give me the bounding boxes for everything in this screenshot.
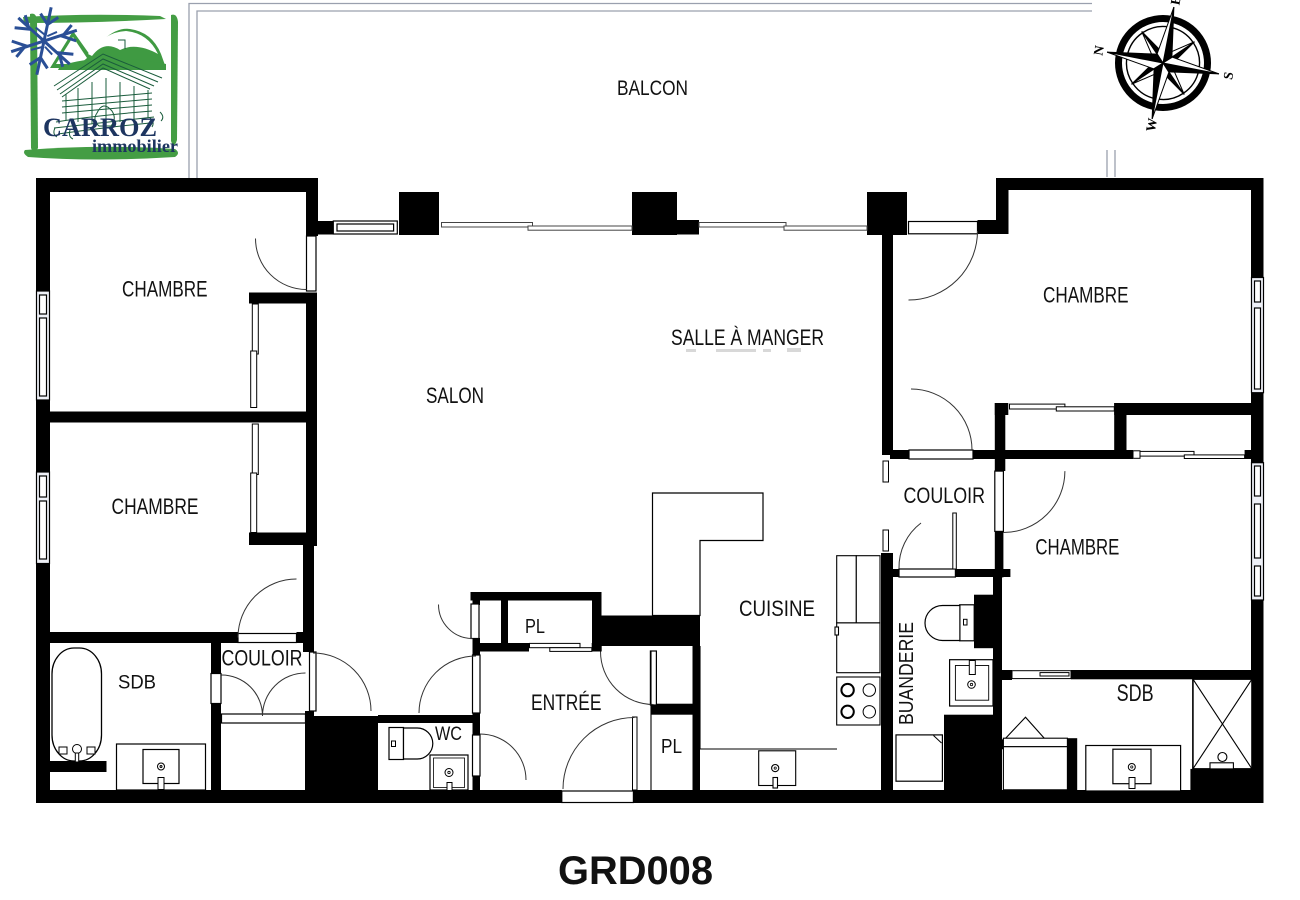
svg-text:COULOIR: COULOIR <box>904 483 986 508</box>
svg-text:immobilier: immobilier <box>92 136 178 156</box>
svg-text:SALLE À MANGER: SALLE À MANGER <box>671 325 824 350</box>
svg-text:GRD008: GRD008 <box>558 849 713 893</box>
svg-text:COULOIR: COULOIR <box>222 646 303 671</box>
svg-text:CUISINE: CUISINE <box>739 596 815 621</box>
svg-text:SDB: SDB <box>1117 680 1154 707</box>
svg-text:CHAMBRE: CHAMBRE <box>1035 535 1119 560</box>
svg-text:CHAMBRE: CHAMBRE <box>1043 283 1129 308</box>
svg-text:CHAMBRE: CHAMBRE <box>112 494 199 519</box>
svg-text:BALCON: BALCON <box>617 77 688 100</box>
svg-text:SDB: SDB <box>118 673 156 694</box>
svg-text:PL: PL <box>525 616 545 638</box>
svg-text:ENTRÉE: ENTRÉE <box>531 690 602 715</box>
svg-text:PL: PL <box>661 736 682 758</box>
svg-text:SALON: SALON <box>426 383 484 408</box>
svg-text:WC: WC <box>435 724 462 745</box>
svg-text:CHAMBRE: CHAMBRE <box>122 277 208 302</box>
svg-text:BUANDERIE: BUANDERIE <box>896 622 918 725</box>
